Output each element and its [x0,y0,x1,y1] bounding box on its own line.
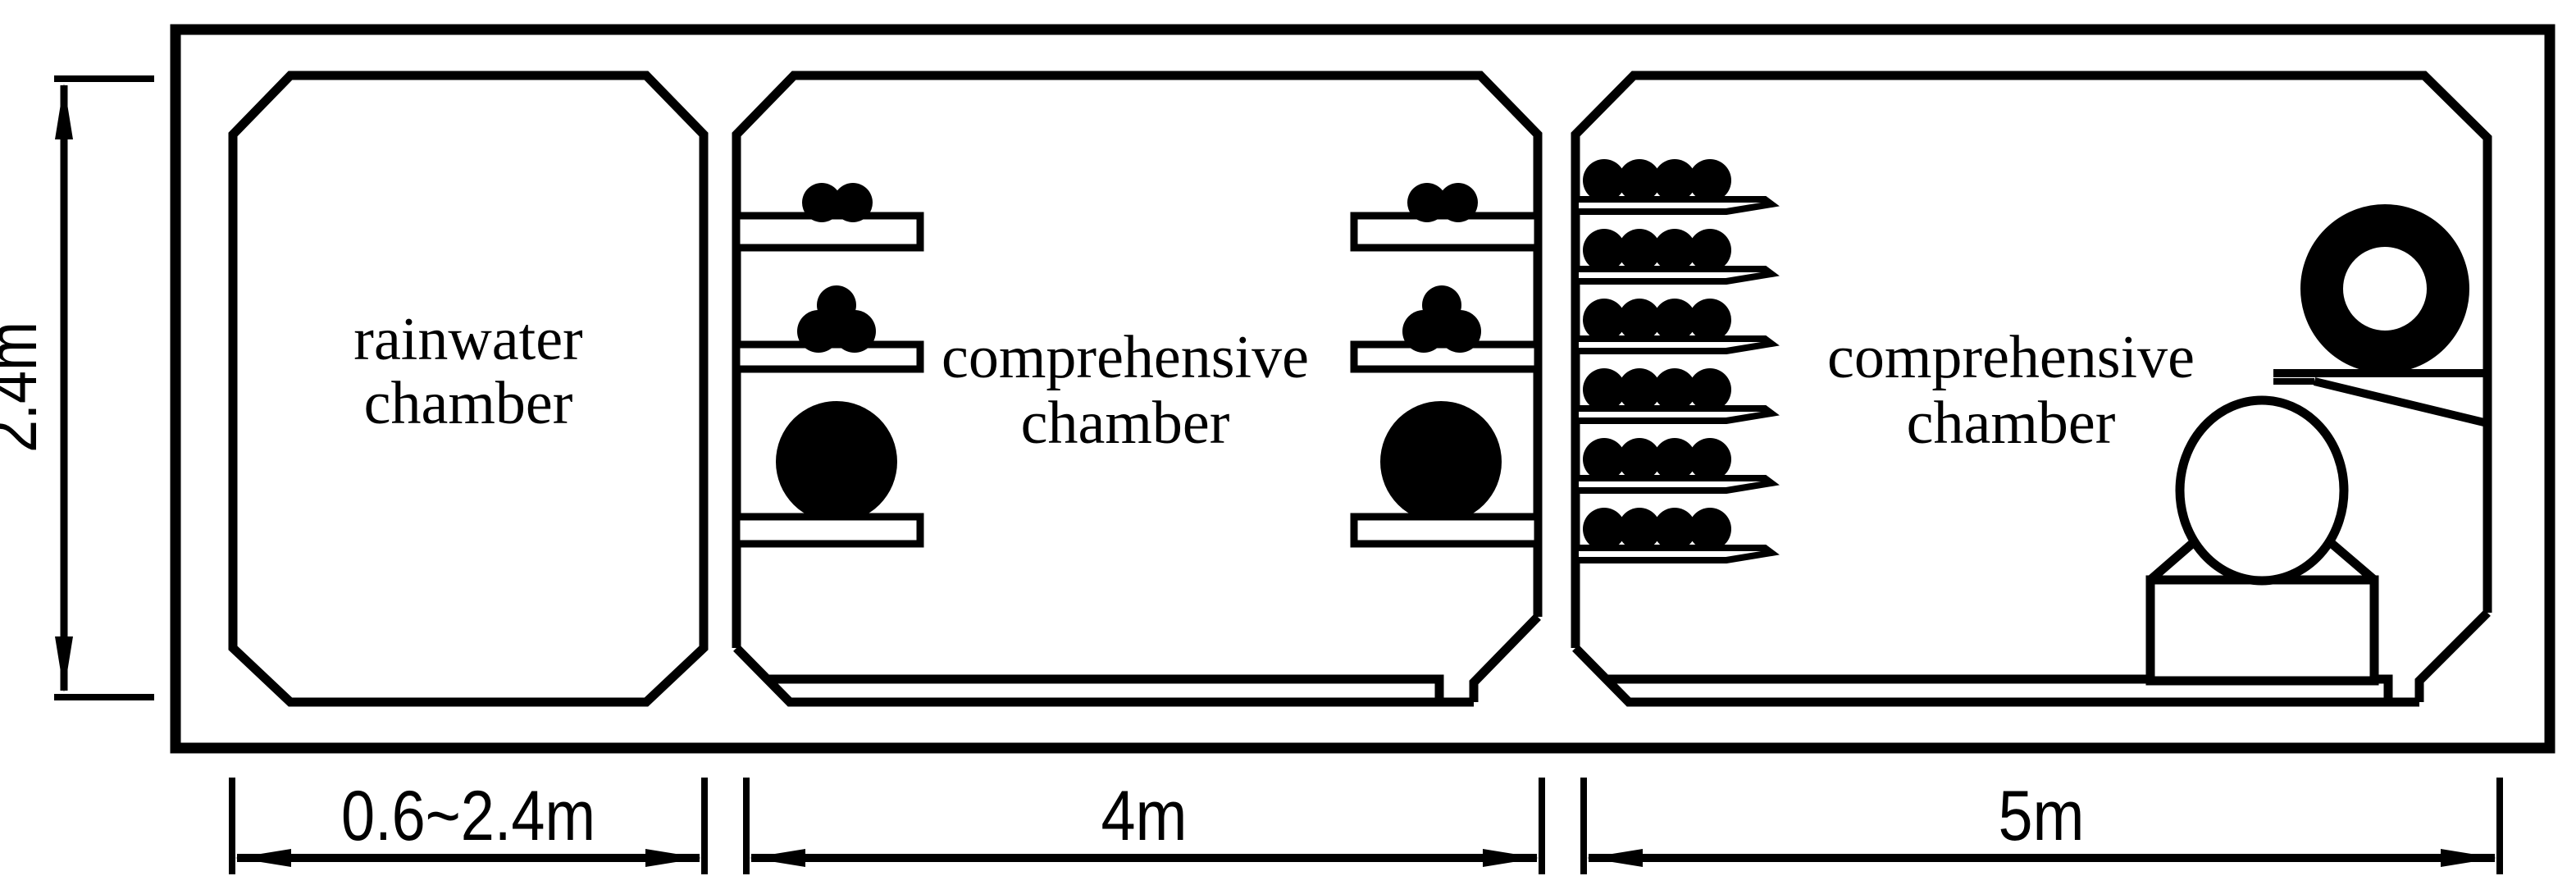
cable-shelf [736,517,920,544]
cable-bundle [1438,310,1481,353]
cable-bundle [833,183,873,222]
cable-bundle [1689,368,1731,411]
chamber-1-right-shelves [1354,183,1538,544]
width-label-comprehensive-2: 5m [1999,777,2085,855]
chamber-2-pipe-pedestal [2150,400,2374,681]
cable-shelf [1354,344,1538,369]
pipe-outline [2180,400,2344,581]
chamber-2-floor-notch [2419,613,2487,702]
comprehensive-chamber-2-label-line2: chamber [1907,390,2116,457]
rainwater-chamber-label-line2: chamber [364,370,573,437]
cable-shelf [1354,517,1538,544]
cable-bundle [1689,508,1731,550]
height-dimension: 2.4m [0,79,154,697]
width-label-rainwater: 0.6~2.4m [341,777,595,855]
cable-bundle [833,310,876,353]
comprehensive-chamber-1-label-line1: comprehensive [941,324,1309,391]
comprehensive-chamber-2-label-line1: comprehensive [1827,324,2195,391]
chamber-2-cable-trays [1575,159,1771,560]
chamber-1-left-shelves [736,183,920,544]
ring-shelf-bottom [2314,381,2487,423]
width-dimensions: 0.6~2.4m 4m 5m [232,777,2500,874]
cable-bundle [1689,229,1731,271]
pipe-solid [1380,401,1502,522]
height-dimension-label: 2.4m [0,322,52,453]
width-label-comprehensive-1: 4m [1101,777,1188,855]
cable-bundle [1689,299,1731,341]
cable-shelf [1354,216,1538,248]
pipe-solid [776,401,897,522]
pipe-pedestal [2150,580,2374,681]
diagram-canvas: rainwater chamber comprehensive chamber … [0,0,2576,885]
cable-bundle [1438,183,1478,222]
coiled-cable-ring [2322,226,2448,352]
cable-bundle [1689,159,1731,202]
rainwater-chamber-label-line1: rainwater [353,306,582,373]
cable-bundle [1689,438,1731,481]
tunnel-cross-section-diagram: rainwater chamber comprehensive chamber … [0,0,2576,885]
comprehensive-chamber-1-label-line2: chamber [1021,390,1230,457]
chamber-1-floor-notch [1474,617,1538,702]
